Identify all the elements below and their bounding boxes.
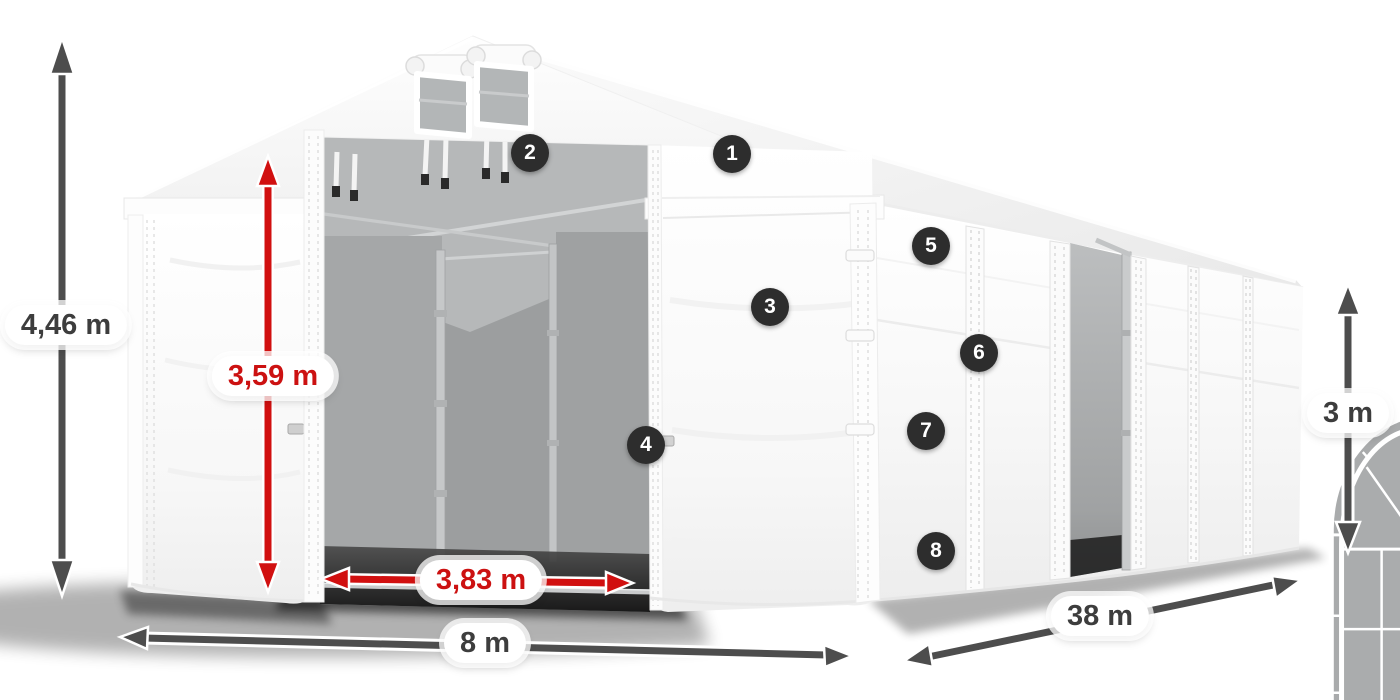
- dimension-label-total-height: 4,46 m: [5, 305, 127, 345]
- feature-marker-8[interactable]: 8: [917, 532, 955, 570]
- feature-marker-1[interactable]: 1: [713, 135, 751, 173]
- side-door-opening: [1070, 240, 1132, 577]
- feature-marker-7[interactable]: 7: [907, 412, 945, 450]
- feature-marker-5[interactable]: 5: [912, 227, 950, 265]
- tent-illustration: [0, 0, 1400, 700]
- tent-dimension-diagram: 4,46 m 3,59 m 3,83 m 8 m 38 m 3 m 1 2 3 …: [0, 0, 1400, 700]
- dimension-label-entrance-height: 3,59 m: [212, 356, 334, 396]
- dimension-label-side-length: 38 m: [1051, 596, 1149, 636]
- front-right-door: [648, 145, 880, 612]
- feature-marker-3[interactable]: 3: [751, 288, 789, 326]
- feature-marker-6[interactable]: 6: [960, 334, 998, 372]
- feature-marker-2[interactable]: 2: [511, 134, 549, 172]
- dimension-label-front-width: 8 m: [444, 623, 526, 663]
- gable-vent-right: [467, 45, 541, 129]
- feature-marker-4[interactable]: 4: [627, 426, 665, 464]
- gable-vent-left: [406, 55, 479, 136]
- dimension-label-entrance-width: 3,83 m: [420, 560, 542, 600]
- dimension-label-side-height: 3 m: [1307, 393, 1389, 433]
